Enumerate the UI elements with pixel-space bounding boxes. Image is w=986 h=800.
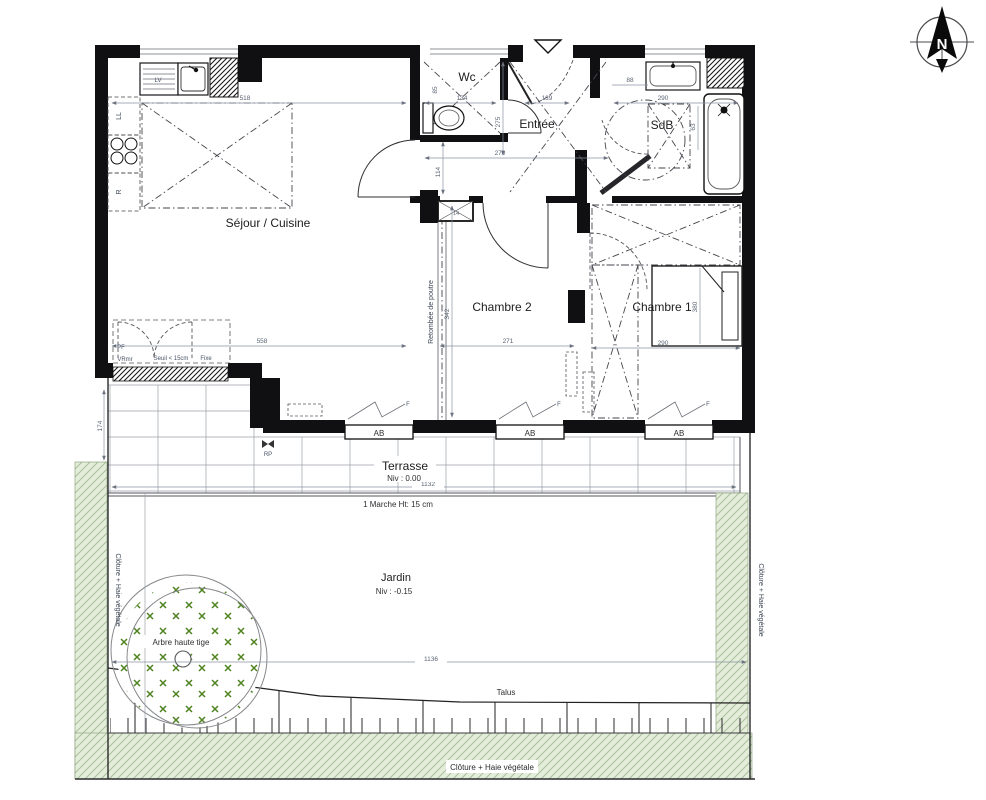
pf-label: PF xyxy=(117,345,125,351)
window-sdb xyxy=(645,49,705,54)
hedge-strip-left xyxy=(75,462,107,779)
entry-door-leaf xyxy=(508,62,532,104)
marche-label: 1 Marche Ht: 15 cm xyxy=(363,500,433,509)
window-entree-high xyxy=(430,49,508,54)
rp-marker: RP xyxy=(262,440,274,458)
dim-14: 14 xyxy=(453,211,459,217)
fridge-box xyxy=(108,173,140,211)
shutter-box-sdb xyxy=(707,58,744,88)
dim-114: 114 xyxy=(435,166,442,177)
f-label-1: F xyxy=(406,402,410,408)
window-ab-3: F AB xyxy=(645,402,713,439)
entry-marker-icon xyxy=(535,40,561,53)
water-heater-circle xyxy=(605,100,685,180)
cloture-bottom-group: Clôture + Haie végétale xyxy=(446,760,538,773)
dim-134: 134 xyxy=(457,95,468,102)
dim-63: 63 xyxy=(690,123,697,131)
seuil-label: Seuil < 15cm xyxy=(154,356,189,362)
washer-label: LL xyxy=(116,112,123,120)
room-label-sdb: SdB xyxy=(651,118,674,132)
room-label-wc: Wc xyxy=(458,70,475,84)
arbre-label: Arbre haute tige xyxy=(153,638,210,647)
ab-label-2: AB xyxy=(525,429,536,438)
kitchen-fixtures: LV LL R xyxy=(108,63,208,211)
washbasin-icon xyxy=(646,62,700,90)
bathtub-icon xyxy=(704,94,744,194)
terrasse-label: Terrasse xyxy=(382,459,428,473)
compass-north-letter: N xyxy=(937,36,948,53)
french-door-labels: PF VRmr Seuil < 15cm Fixe xyxy=(117,345,212,363)
shutter-box-kitchen xyxy=(210,58,238,97)
floor-plan-svg: 1136 1132 xyxy=(0,0,986,800)
tree-trunk xyxy=(175,651,191,667)
room-label-entree: Entrée xyxy=(519,117,555,131)
cloture-bottom-label: Clôture + Haie végétale xyxy=(450,763,534,772)
dim-558: 558 xyxy=(257,338,268,345)
hedge-strip-bottom xyxy=(75,733,752,779)
talus-label: Talus xyxy=(497,688,516,697)
dim-518: 518 xyxy=(240,95,251,102)
ab-label-1: AB xyxy=(374,429,385,438)
fixe-label: Fixe xyxy=(200,356,212,362)
f-label-2: F xyxy=(557,402,561,408)
dim-275: 275 xyxy=(495,116,502,127)
floor-plan: 1136 1132 xyxy=(0,0,986,800)
room-label-chambre1: Chambre 1 xyxy=(632,300,692,314)
dim-174: 174 xyxy=(97,420,104,431)
dishwasher-label: LV xyxy=(155,78,162,84)
toilet-icon xyxy=(423,103,464,133)
rp-label: RP xyxy=(264,452,272,458)
compass-north-icon: N xyxy=(910,6,974,73)
dim-1132: 1132 xyxy=(421,481,435,488)
talus-label-group: Talus xyxy=(487,685,525,698)
vr-label: VRmr xyxy=(117,357,132,363)
beam-label: Retombée de poutre xyxy=(428,280,435,344)
window-ab-2: F AB xyxy=(496,402,564,439)
tree-icon xyxy=(111,575,267,728)
dim-380: 380 xyxy=(692,301,699,312)
radiators xyxy=(288,352,594,416)
dim-139: 139 xyxy=(542,95,553,102)
dim-88: 88 xyxy=(626,77,634,84)
room-label-sejour: Séjour / Cuisine xyxy=(226,216,311,230)
room-label-chambre2: Chambre 2 xyxy=(472,300,532,314)
window-ab-1: F AB xyxy=(345,402,413,439)
f-label-3: F xyxy=(706,402,710,408)
ab-label-3: AB xyxy=(674,429,685,438)
cloture-right-label: Clôture + Haie végétale xyxy=(757,563,764,636)
jardin-label-group: Jardin Niv : -0.15 xyxy=(376,572,413,596)
cloture-left-label: Clôture + Haie végétale xyxy=(114,553,121,626)
dim-1136: 1136 xyxy=(424,656,438,663)
dim-270: 270 xyxy=(495,150,506,157)
window-kitchen xyxy=(140,49,238,54)
dim-290-ch1: 290 xyxy=(658,340,669,347)
dim-85: 85 xyxy=(432,86,439,94)
arbre-label-group: Arbre haute tige xyxy=(138,635,224,648)
dim-342: 342 xyxy=(444,308,451,319)
jardin-level: Niv : -0.15 xyxy=(376,587,413,596)
fridge-label: R xyxy=(116,189,123,194)
terrasse-label-group: Terrasse Niv : 0.00 xyxy=(374,456,436,483)
jardin-label: Jardin xyxy=(381,572,411,584)
terrasse-level: Niv : 0.00 xyxy=(387,474,421,483)
dim-290-sdb: 290 xyxy=(658,95,669,102)
threshold-hatch xyxy=(113,367,228,381)
dim-271: 271 xyxy=(503,338,514,345)
interior-window: 14 xyxy=(438,201,473,221)
